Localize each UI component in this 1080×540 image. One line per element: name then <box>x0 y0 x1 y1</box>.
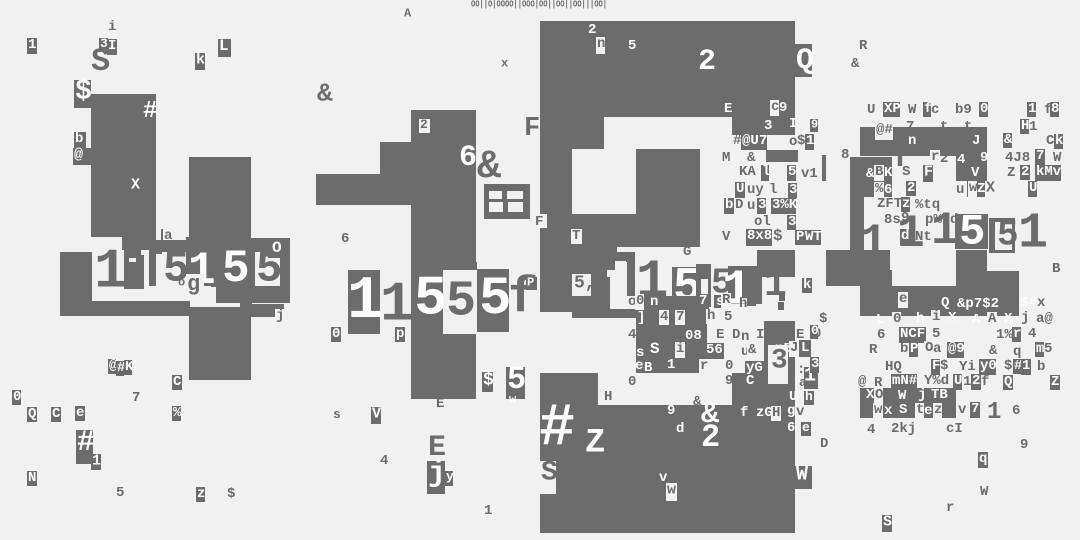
svg-text:P: P <box>527 276 534 290</box>
svg-text:Q: Q <box>28 406 36 422</box>
svg-text:9: 9 <box>779 100 787 116</box>
svg-text:N: N <box>28 470 36 486</box>
svg-text:O: O <box>875 387 883 403</box>
svg-text:1: 1 <box>1022 358 1030 374</box>
svg-text:h: h <box>805 389 813 404</box>
svg-text:X: X <box>1004 311 1013 327</box>
svg-text:2: 2 <box>907 180 915 196</box>
svg-text:w: w <box>667 481 676 498</box>
svg-text:cI: cI <box>946 421 963 437</box>
svg-text:@9: @9 <box>948 341 965 357</box>
svg-text:r: r <box>700 358 708 374</box>
svg-text:A: A <box>404 7 412 21</box>
svg-text:4: 4 <box>867 422 875 438</box>
svg-text:S: S <box>650 340 660 358</box>
svg-text:i: i <box>932 309 940 325</box>
svg-text:0: 0 <box>811 323 819 338</box>
svg-text:&: & <box>317 78 333 108</box>
svg-text:r: r <box>1013 326 1021 342</box>
svg-text:XP: XP <box>884 101 901 117</box>
svg-text:e: e <box>635 358 643 374</box>
svg-text:2: 2 <box>1021 164 1029 180</box>
svg-text:2: 2 <box>701 419 720 456</box>
svg-text:f: f <box>981 374 989 390</box>
svg-text:$: $ <box>773 227 783 245</box>
svg-text:b: b <box>725 197 733 213</box>
svg-text:Z: Z <box>585 424 605 462</box>
svg-text:5: 5 <box>479 269 511 330</box>
svg-text:6: 6 <box>459 141 477 175</box>
svg-text:D: D <box>820 436 828 452</box>
svg-text:e: e <box>899 291 907 307</box>
svg-text:n: n <box>908 133 916 149</box>
svg-text:M: M <box>722 150 730 166</box>
svg-text:r: r <box>931 149 939 165</box>
svg-text:0: 0 <box>13 389 21 405</box>
svg-text:46: 46 <box>628 327 645 343</box>
svg-text:1: 1 <box>1028 101 1036 117</box>
svg-text:8: 8 <box>841 147 849 163</box>
svg-text:K: K <box>125 359 134 375</box>
svg-text:$: $ <box>819 311 827 327</box>
svg-text:Z: Z <box>977 181 985 197</box>
svg-text:c: c <box>931 102 939 118</box>
svg-text:D: D <box>735 197 743 213</box>
svg-text:$#: $# <box>1020 295 1037 311</box>
svg-text:$: $ <box>227 486 235 502</box>
svg-text:f: f <box>740 405 748 421</box>
svg-text:2: 2 <box>420 117 428 132</box>
svg-text:5: 5 <box>724 309 732 325</box>
svg-text:5: 5 <box>997 215 1019 256</box>
svg-text:L: L <box>801 340 809 356</box>
svg-text:6: 6 <box>341 231 349 247</box>
svg-text:V: V <box>971 165 980 181</box>
svg-text:H: H <box>772 405 780 421</box>
svg-text:d: d <box>676 421 684 437</box>
svg-text:u: u <box>956 182 964 198</box>
svg-text:R: R <box>859 38 868 54</box>
svg-text:1: 1 <box>860 217 888 269</box>
svg-text:5: 5 <box>222 243 250 295</box>
svg-text:2: 2 <box>972 373 980 389</box>
svg-text:z: z <box>197 486 205 502</box>
svg-text:v1: v1 <box>801 166 818 182</box>
svg-text:o: o <box>178 276 185 290</box>
svg-text:1%: 1% <box>996 327 1013 343</box>
svg-text:5: 5 <box>414 266 448 330</box>
svg-text:e: e <box>802 420 810 435</box>
svg-text:2: 2 <box>588 22 596 38</box>
svg-text:&: & <box>477 145 501 190</box>
svg-text:U: U <box>954 373 962 389</box>
svg-text:h: h <box>739 296 747 312</box>
svg-text:9: 9 <box>725 373 733 389</box>
svg-text:1: 1 <box>92 452 101 469</box>
svg-text:7: 7 <box>1036 148 1044 164</box>
svg-text:C: C <box>52 406 61 422</box>
svg-text:kMv: kMv <box>1036 164 1062 180</box>
svg-text:1: 1 <box>28 37 36 53</box>
svg-text:6: 6 <box>877 327 885 343</box>
svg-text:OO||O|OOOO||OOO|OO||OO||OO|||O: OO||O|OOOO||OOO|OO||OO||OO|||OO| <box>471 0 607 10</box>
svg-text:w: w <box>509 393 517 407</box>
svg-text:P: P <box>796 229 804 245</box>
svg-text:J: J <box>972 133 980 149</box>
svg-text:08: 08 <box>685 328 702 344</box>
svg-text:0: 0 <box>725 358 733 374</box>
svg-text:1: 1 <box>667 357 675 373</box>
svg-text:X: X <box>866 387 875 403</box>
svg-text:B: B <box>644 360 653 376</box>
svg-text:&: & <box>989 343 998 359</box>
svg-text:U: U <box>736 181 744 197</box>
svg-text:3%K: 3%K <box>772 197 798 213</box>
svg-text:O: O <box>272 239 282 257</box>
svg-text:A: A <box>988 311 997 327</box>
svg-text:9: 9 <box>811 118 818 132</box>
svg-text:E: E <box>724 101 732 117</box>
svg-text:n: n <box>650 294 658 310</box>
svg-text:k: k <box>803 277 811 293</box>
svg-text:C: C <box>1046 133 1055 149</box>
svg-text:Q: Q <box>1004 374 1012 390</box>
svg-text:1: 1 <box>931 205 959 257</box>
svg-text:e: e <box>924 403 932 419</box>
svg-text:2: 2 <box>698 45 716 79</box>
svg-text:w: w <box>874 402 883 418</box>
svg-text:WT: WT <box>805 229 822 245</box>
svg-text:$: $ <box>1004 358 1012 374</box>
svg-text:#: # <box>143 98 157 125</box>
svg-text:5: 5 <box>1044 341 1052 357</box>
svg-text:F: F <box>924 163 933 180</box>
svg-text:5: 5 <box>116 485 124 501</box>
svg-text:4: 4 <box>660 309 668 325</box>
svg-text:7: 7 <box>699 293 707 309</box>
svg-text:5: 5 <box>628 38 636 54</box>
svg-text:B: B <box>875 164 884 180</box>
svg-text:x: x <box>501 57 508 71</box>
svg-text:R: R <box>722 292 731 308</box>
svg-text:i: i <box>108 19 116 35</box>
svg-text:%: % <box>875 181 884 197</box>
svg-text:0: 0 <box>332 326 340 342</box>
svg-text:U: U <box>789 389 797 405</box>
svg-text:@: @ <box>74 146 83 163</box>
svg-text:K: K <box>884 165 893 181</box>
svg-text:9: 9 <box>1020 437 1028 453</box>
svg-text:7: 7 <box>676 309 684 325</box>
svg-text:#: # <box>539 395 575 463</box>
svg-text:b9: b9 <box>955 102 972 118</box>
svg-text:zG: zG <box>756 405 773 421</box>
svg-text:e: e <box>76 405 84 421</box>
svg-text:S: S <box>902 164 910 180</box>
svg-text:y0: y0 <box>980 358 997 374</box>
svg-text:J: J <box>790 340 798 356</box>
svg-text:Q: Q <box>796 44 814 78</box>
svg-text:C: C <box>746 373 755 389</box>
svg-text:H: H <box>604 389 612 405</box>
svg-text:E: E <box>436 396 444 412</box>
svg-text:X: X <box>986 179 995 196</box>
svg-text:6: 6 <box>1012 403 1020 419</box>
svg-text:s: s <box>333 407 341 422</box>
svg-text:@U: @U <box>742 133 759 149</box>
svg-text:k: k <box>1055 133 1063 149</box>
svg-text:TB: TB <box>931 387 948 403</box>
svg-text:b: b <box>75 131 83 147</box>
svg-text:L: L <box>219 37 229 55</box>
svg-text:1: 1 <box>94 239 128 303</box>
svg-text:2kj: 2kj <box>891 421 916 437</box>
svg-text:v: v <box>958 402 967 418</box>
svg-text:g: g <box>187 272 200 297</box>
svg-text:@#: @# <box>876 122 893 138</box>
svg-text:#: # <box>733 133 741 149</box>
svg-text:%: % <box>173 405 182 421</box>
svg-text:C: C <box>173 374 182 390</box>
svg-text:n: n <box>597 36 605 52</box>
svg-text:1: 1 <box>806 133 814 149</box>
svg-text:&: & <box>866 166 875 182</box>
svg-text:8: 8 <box>1051 101 1059 117</box>
svg-text:NCF: NCF <box>900 326 925 342</box>
svg-text:D: D <box>732 327 740 343</box>
svg-text:9: 9 <box>667 403 675 419</box>
svg-text:j: j <box>428 457 446 491</box>
svg-text:0: 0 <box>893 311 901 327</box>
svg-text:3: 3 <box>811 356 819 372</box>
svg-text:5,: 5, <box>574 273 596 293</box>
svg-text:U: U <box>867 102 875 118</box>
svg-text:8x8: 8x8 <box>747 228 772 244</box>
svg-text:9: 9 <box>980 150 988 166</box>
svg-text:Q: Q <box>941 295 949 311</box>
svg-text:0: 0 <box>636 293 644 309</box>
svg-text:7: 7 <box>971 401 979 417</box>
svg-text:x: x <box>884 403 893 419</box>
svg-text:p: p <box>396 326 404 342</box>
svg-text:5: 5 <box>788 164 796 180</box>
svg-text:1: 1 <box>987 399 1001 426</box>
svg-text:3: 3 <box>789 182 797 198</box>
svg-text:L: L <box>876 312 884 328</box>
svg-text:V: V <box>372 405 381 422</box>
svg-text:A: A <box>972 312 981 328</box>
svg-text:j: j <box>276 308 284 324</box>
svg-text:5: 5 <box>446 274 476 331</box>
svg-text:r: r <box>946 500 954 516</box>
svg-text:j: j <box>918 387 926 403</box>
svg-text:k: k <box>196 51 205 68</box>
svg-text:7: 7 <box>132 390 140 406</box>
svg-text:W: W <box>980 484 989 500</box>
svg-text:6: 6 <box>787 420 795 436</box>
svg-text:W: W <box>796 464 808 487</box>
svg-text:0: 0 <box>628 374 636 390</box>
svg-text:3: 3 <box>788 214 796 230</box>
svg-text:&: & <box>1004 132 1013 148</box>
svg-text:P: P <box>910 341 918 357</box>
svg-text:j: j <box>1021 310 1029 326</box>
svg-text:7: 7 <box>759 133 767 149</box>
svg-text:5: 5 <box>163 245 189 295</box>
svg-text:$: $ <box>797 133 805 149</box>
svg-text:0: 0 <box>980 101 988 117</box>
svg-text:a@: a@ <box>1036 311 1053 327</box>
svg-text:T: T <box>572 228 580 244</box>
svg-text:56: 56 <box>706 342 723 358</box>
svg-text:1: 1 <box>1018 206 1048 263</box>
svg-text:x: x <box>1037 295 1046 311</box>
svg-text:1: 1 <box>347 268 383 336</box>
svg-text:S: S <box>883 513 892 530</box>
svg-text:I: I <box>789 116 797 132</box>
svg-text:E: E <box>716 327 724 343</box>
svg-text:Z: Z <box>1051 374 1059 390</box>
svg-text:h: h <box>707 308 715 324</box>
svg-text:&: & <box>748 342 757 358</box>
svg-text:S: S <box>899 402 907 418</box>
svg-text:1: 1 <box>963 374 971 390</box>
svg-text:y: y <box>446 469 454 484</box>
svg-text:2: 2 <box>940 151 948 167</box>
svg-text:G: G <box>683 244 691 260</box>
svg-text:&: & <box>851 56 860 72</box>
svg-text:]: ] <box>637 310 645 326</box>
svg-text:3: 3 <box>758 197 766 213</box>
svg-text:z: z <box>934 402 942 418</box>
svg-text:Z: Z <box>1007 165 1015 181</box>
svg-text:U: U <box>1029 180 1037 196</box>
svg-text:1: 1 <box>484 503 492 519</box>
svg-text:&p7$2: &p7$2 <box>957 296 999 312</box>
svg-text:1: 1 <box>897 208 925 260</box>
svg-text:X: X <box>131 176 140 193</box>
svg-text:b: b <box>1037 359 1045 375</box>
svg-text:4: 4 <box>380 453 388 469</box>
svg-text:v: v <box>796 404 805 420</box>
svg-text:h: h <box>916 311 924 327</box>
svg-text:$: $ <box>75 77 92 108</box>
svg-text:$: $ <box>483 370 494 390</box>
svg-text:KA: KA <box>739 164 756 180</box>
svg-text:3: 3 <box>771 346 788 377</box>
svg-text:R: R <box>869 342 878 358</box>
svg-text:W: W <box>908 102 917 118</box>
svg-text:uy: uy <box>747 182 764 198</box>
svg-text:F: F <box>535 214 543 230</box>
svg-text:u: u <box>747 198 755 214</box>
svg-text:4: 4 <box>957 152 965 168</box>
svg-text:a: a <box>933 341 942 357</box>
svg-text:i: i <box>676 341 684 357</box>
svg-text:q: q <box>979 451 987 467</box>
svg-text:5: 5 <box>959 208 985 258</box>
svg-text:S: S <box>91 43 110 80</box>
svg-text:t: t <box>940 119 948 135</box>
svg-text:3: 3 <box>764 118 772 134</box>
svg-text:$: $ <box>940 358 948 374</box>
svg-text:1: 1 <box>1029 119 1037 135</box>
svg-text:l: l <box>762 164 770 180</box>
svg-text:F: F <box>524 114 540 144</box>
svg-text:V: V <box>722 229 731 245</box>
svg-text:b: b <box>900 341 908 357</box>
svg-text:g: g <box>787 403 795 419</box>
svg-text:B: B <box>1052 261 1061 277</box>
svg-text:l: l <box>769 182 777 198</box>
svg-text:4: 4 <box>1028 326 1036 342</box>
svg-text:X: X <box>948 310 957 326</box>
svg-text:mN#: mN# <box>892 373 917 389</box>
